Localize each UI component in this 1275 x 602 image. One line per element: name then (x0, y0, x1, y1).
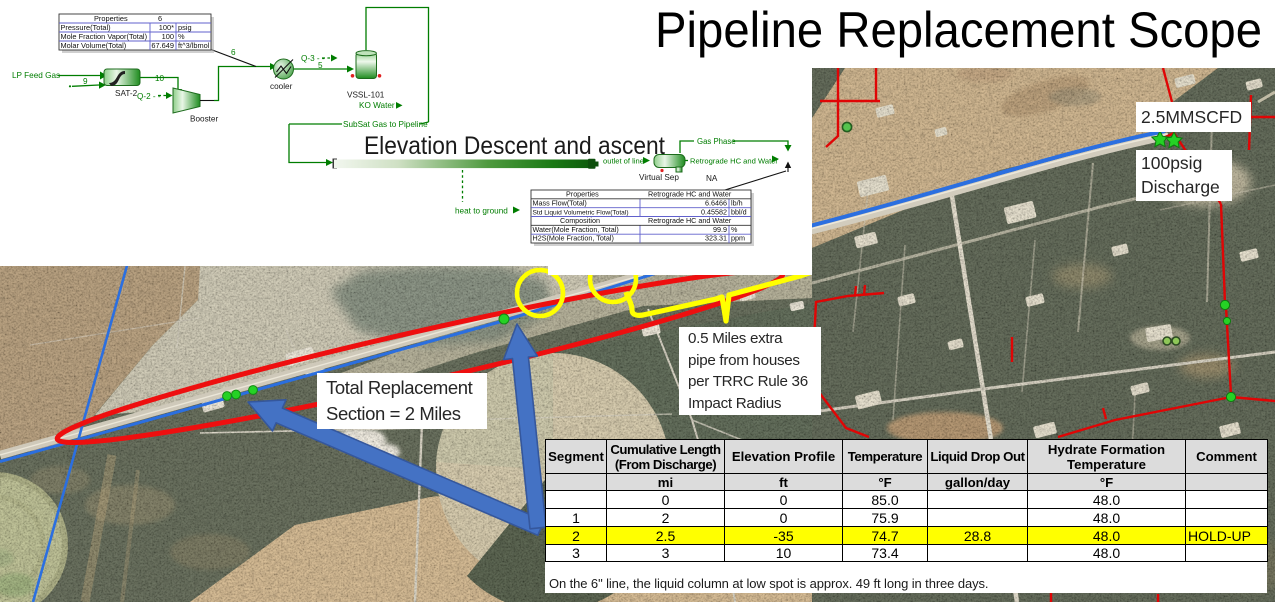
svg-text:Booster: Booster (190, 115, 218, 124)
svg-text:LP Feed Gas: LP Feed Gas (12, 71, 60, 80)
svg-text:ppm: ppm (731, 234, 745, 243)
svg-text:Q-2 - -: Q-2 - - (137, 92, 161, 101)
svg-text:Composition: Composition (560, 216, 600, 225)
svg-text:6: 6 (158, 14, 162, 23)
svg-text:Properties: Properties (566, 190, 599, 199)
svg-text:6: 6 (231, 48, 236, 57)
svg-text:Mass Flow(Total): Mass Flow(Total) (533, 199, 587, 208)
svg-text:Retrograde HC and Water: Retrograde HC and Water (648, 190, 732, 199)
svg-text:%: % (178, 32, 185, 41)
svg-text:Gas Phase: Gas Phase (697, 137, 736, 146)
svg-text:NA: NA (706, 174, 718, 183)
svg-text:99.9: 99.9 (713, 225, 727, 234)
svg-text:Pipeline Replacement Scope: Pipeline Replacement Scope (655, 2, 1262, 58)
svg-text:9: 9 (83, 77, 88, 86)
svg-text:cooler: cooler (270, 82, 293, 91)
svg-text:SubSat Gas to Pipeline: SubSat Gas to Pipeline (343, 120, 428, 129)
svg-text:VSSL-101: VSSL-101 (347, 91, 385, 100)
svg-text:KO Water: KO Water (359, 101, 395, 110)
svg-text:psig: psig (178, 23, 192, 32)
svg-text:10: 10 (155, 74, 165, 83)
svg-text:heat to ground: heat to ground (455, 207, 508, 216)
svg-text:%: % (731, 225, 738, 234)
svg-text:Molar Volume(Total): Molar Volume(Total) (61, 41, 127, 50)
svg-text:SAT-2: SAT-2 (115, 89, 138, 98)
svg-text:H2S(Mole Fraction, Total): H2S(Mole Fraction, Total) (533, 234, 614, 243)
svg-text:lb/h: lb/h (731, 199, 743, 208)
svg-text:Pressure(Total): Pressure(Total) (61, 23, 111, 32)
svg-text:6.6466: 6.6466 (705, 199, 727, 208)
svg-text:100*: 100* (159, 23, 174, 32)
svg-text:100: 100 (162, 32, 174, 41)
svg-text:Retrograde HC and Water: Retrograde HC and Water (690, 157, 778, 166)
svg-text:Retrograde HC and Water: Retrograde HC and Water (648, 216, 732, 225)
svg-text:Water(Mole Fraction, Total): Water(Mole Fraction, Total) (533, 225, 619, 234)
svg-text:Virtual Sep: Virtual Sep (639, 173, 679, 182)
svg-text:Mole Fraction Vapor(Total): Mole Fraction Vapor(Total) (61, 32, 148, 41)
svg-text:5: 5 (318, 61, 323, 70)
svg-text:ft^3/lbmol: ft^3/lbmol (178, 41, 210, 50)
svg-text:Properties: Properties (94, 14, 128, 23)
svg-text:0.45582: 0.45582 (701, 207, 727, 216)
svg-text:bbl/d: bbl/d (731, 207, 747, 216)
svg-text:Elevation Descent and ascent: Elevation Descent and ascent (364, 132, 665, 160)
svg-text:67.649: 67.649 (151, 41, 174, 50)
svg-text:323.31: 323.31 (705, 234, 727, 243)
